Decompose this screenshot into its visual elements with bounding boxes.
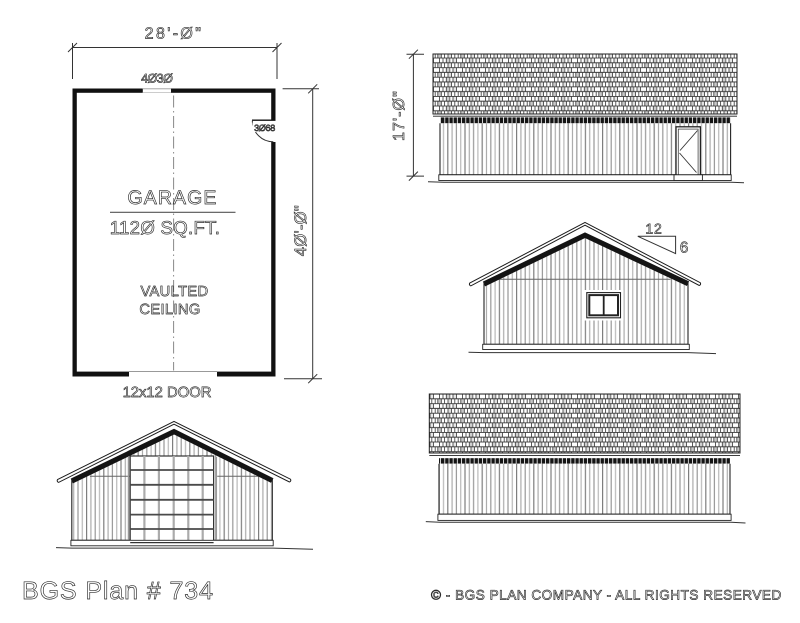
svg-text:CEILING: CEILING bbox=[139, 302, 200, 318]
svg-text:VAULTED: VAULTED bbox=[140, 284, 208, 300]
svg-text:6: 6 bbox=[680, 240, 689, 257]
svg-text:4Ø'-Ø": 4Ø'-Ø" bbox=[292, 205, 310, 256]
svg-text:© - BGS PLAN COMPANY - ALL RIG: © - BGS PLAN COMPANY - ALL RIGHTS RESERV… bbox=[431, 588, 782, 603]
svg-text:BGS Plan # 734: BGS Plan # 734 bbox=[22, 577, 214, 605]
svg-text:3Ø68: 3Ø68 bbox=[254, 123, 275, 133]
svg-text:28'-Ø": 28'-Ø" bbox=[145, 26, 204, 43]
svg-text:12x12 DOOR: 12x12 DOOR bbox=[123, 385, 212, 401]
svg-text:GARAGE: GARAGE bbox=[127, 187, 217, 209]
svg-text:112Ø SQ.FT.: 112Ø SQ.FT. bbox=[110, 217, 220, 238]
svg-text:4Ø3Ø: 4Ø3Ø bbox=[141, 72, 173, 86]
svg-text:17'-Ø": 17'-Ø" bbox=[391, 90, 408, 141]
svg-text:12: 12 bbox=[645, 221, 662, 237]
